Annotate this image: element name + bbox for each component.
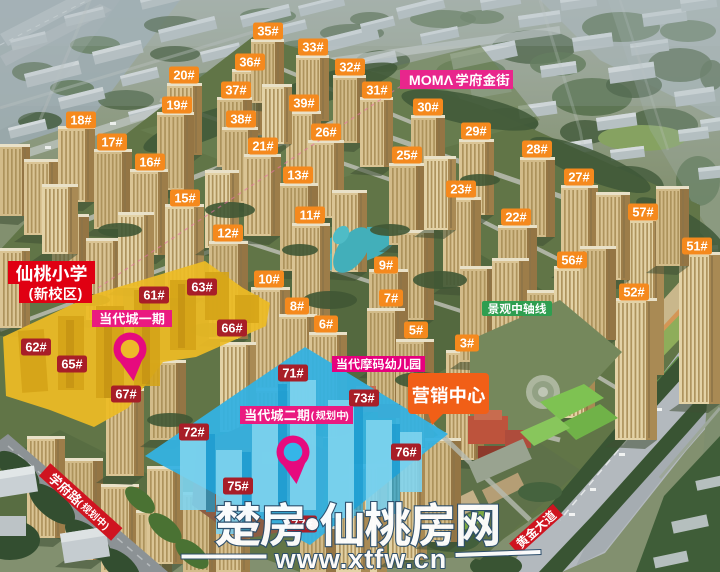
svg-text:17#: 17# bbox=[101, 135, 122, 150]
svg-text:31#: 31# bbox=[366, 83, 387, 98]
svg-text:9#: 9# bbox=[379, 258, 393, 273]
svg-text:52#: 52# bbox=[623, 285, 644, 300]
svg-text:www.xtfw.cn: www.xtfw.cn bbox=[274, 544, 448, 572]
svg-text:10#: 10# bbox=[258, 272, 279, 287]
svg-text:19#: 19# bbox=[166, 98, 187, 113]
svg-text:35#: 35# bbox=[257, 24, 278, 39]
svg-text:18#: 18# bbox=[70, 113, 91, 128]
svg-text:32#: 32# bbox=[339, 60, 360, 75]
svg-text:13#: 13# bbox=[287, 168, 308, 183]
svg-text:67#: 67# bbox=[115, 387, 136, 402]
svg-text:27#: 27# bbox=[568, 170, 589, 185]
svg-text:30#: 30# bbox=[417, 100, 438, 115]
svg-text:23#: 23# bbox=[450, 182, 471, 197]
svg-text:38#: 38# bbox=[230, 112, 251, 127]
svg-text:56#: 56# bbox=[561, 253, 582, 268]
svg-text:37#: 37# bbox=[225, 83, 246, 98]
svg-text:51#: 51# bbox=[686, 239, 707, 254]
svg-text:11#: 11# bbox=[300, 208, 321, 223]
svg-text:12#: 12# bbox=[217, 226, 238, 241]
svg-text:(: ( bbox=[311, 410, 315, 422]
svg-text:26#: 26# bbox=[315, 125, 336, 140]
svg-text:29#: 29# bbox=[465, 124, 486, 139]
svg-text:): ) bbox=[345, 410, 349, 422]
svg-text:(: ( bbox=[29, 285, 34, 301]
svg-text:8#: 8# bbox=[290, 299, 304, 314]
svg-text:57#: 57# bbox=[632, 205, 653, 220]
svg-text:61#: 61# bbox=[143, 288, 164, 303]
svg-text:7#: 7# bbox=[384, 291, 398, 306]
svg-text:15#: 15# bbox=[174, 191, 195, 206]
svg-text:): ) bbox=[78, 285, 83, 301]
svg-text:5#: 5# bbox=[409, 323, 423, 338]
svg-text:33#: 33# bbox=[302, 40, 323, 55]
svg-text:73#: 73# bbox=[353, 391, 374, 406]
svg-text:25#: 25# bbox=[396, 148, 417, 163]
svg-text:21#: 21# bbox=[252, 139, 273, 154]
svg-text:75#: 75# bbox=[227, 479, 248, 494]
svg-text:63#: 63# bbox=[191, 280, 212, 295]
svg-text:3#: 3# bbox=[460, 336, 474, 351]
svg-text:66#: 66# bbox=[221, 321, 242, 336]
svg-text:65#: 65# bbox=[61, 357, 82, 372]
svg-text:20#: 20# bbox=[173, 68, 194, 83]
svg-text:36#: 36# bbox=[239, 55, 260, 70]
svg-text:MOMΛ: MOMΛ bbox=[409, 73, 454, 89]
svg-text:39#: 39# bbox=[293, 96, 314, 111]
svg-text:28#: 28# bbox=[526, 142, 547, 157]
svg-text:72#: 72# bbox=[183, 425, 204, 440]
svg-text:22#: 22# bbox=[505, 210, 526, 225]
svg-text:71#: 71# bbox=[282, 366, 303, 381]
svg-text:62#: 62# bbox=[25, 340, 46, 355]
svg-text:76#: 76# bbox=[395, 445, 416, 460]
svg-text:16#: 16# bbox=[139, 155, 160, 170]
svg-text:6#: 6# bbox=[319, 317, 333, 332]
